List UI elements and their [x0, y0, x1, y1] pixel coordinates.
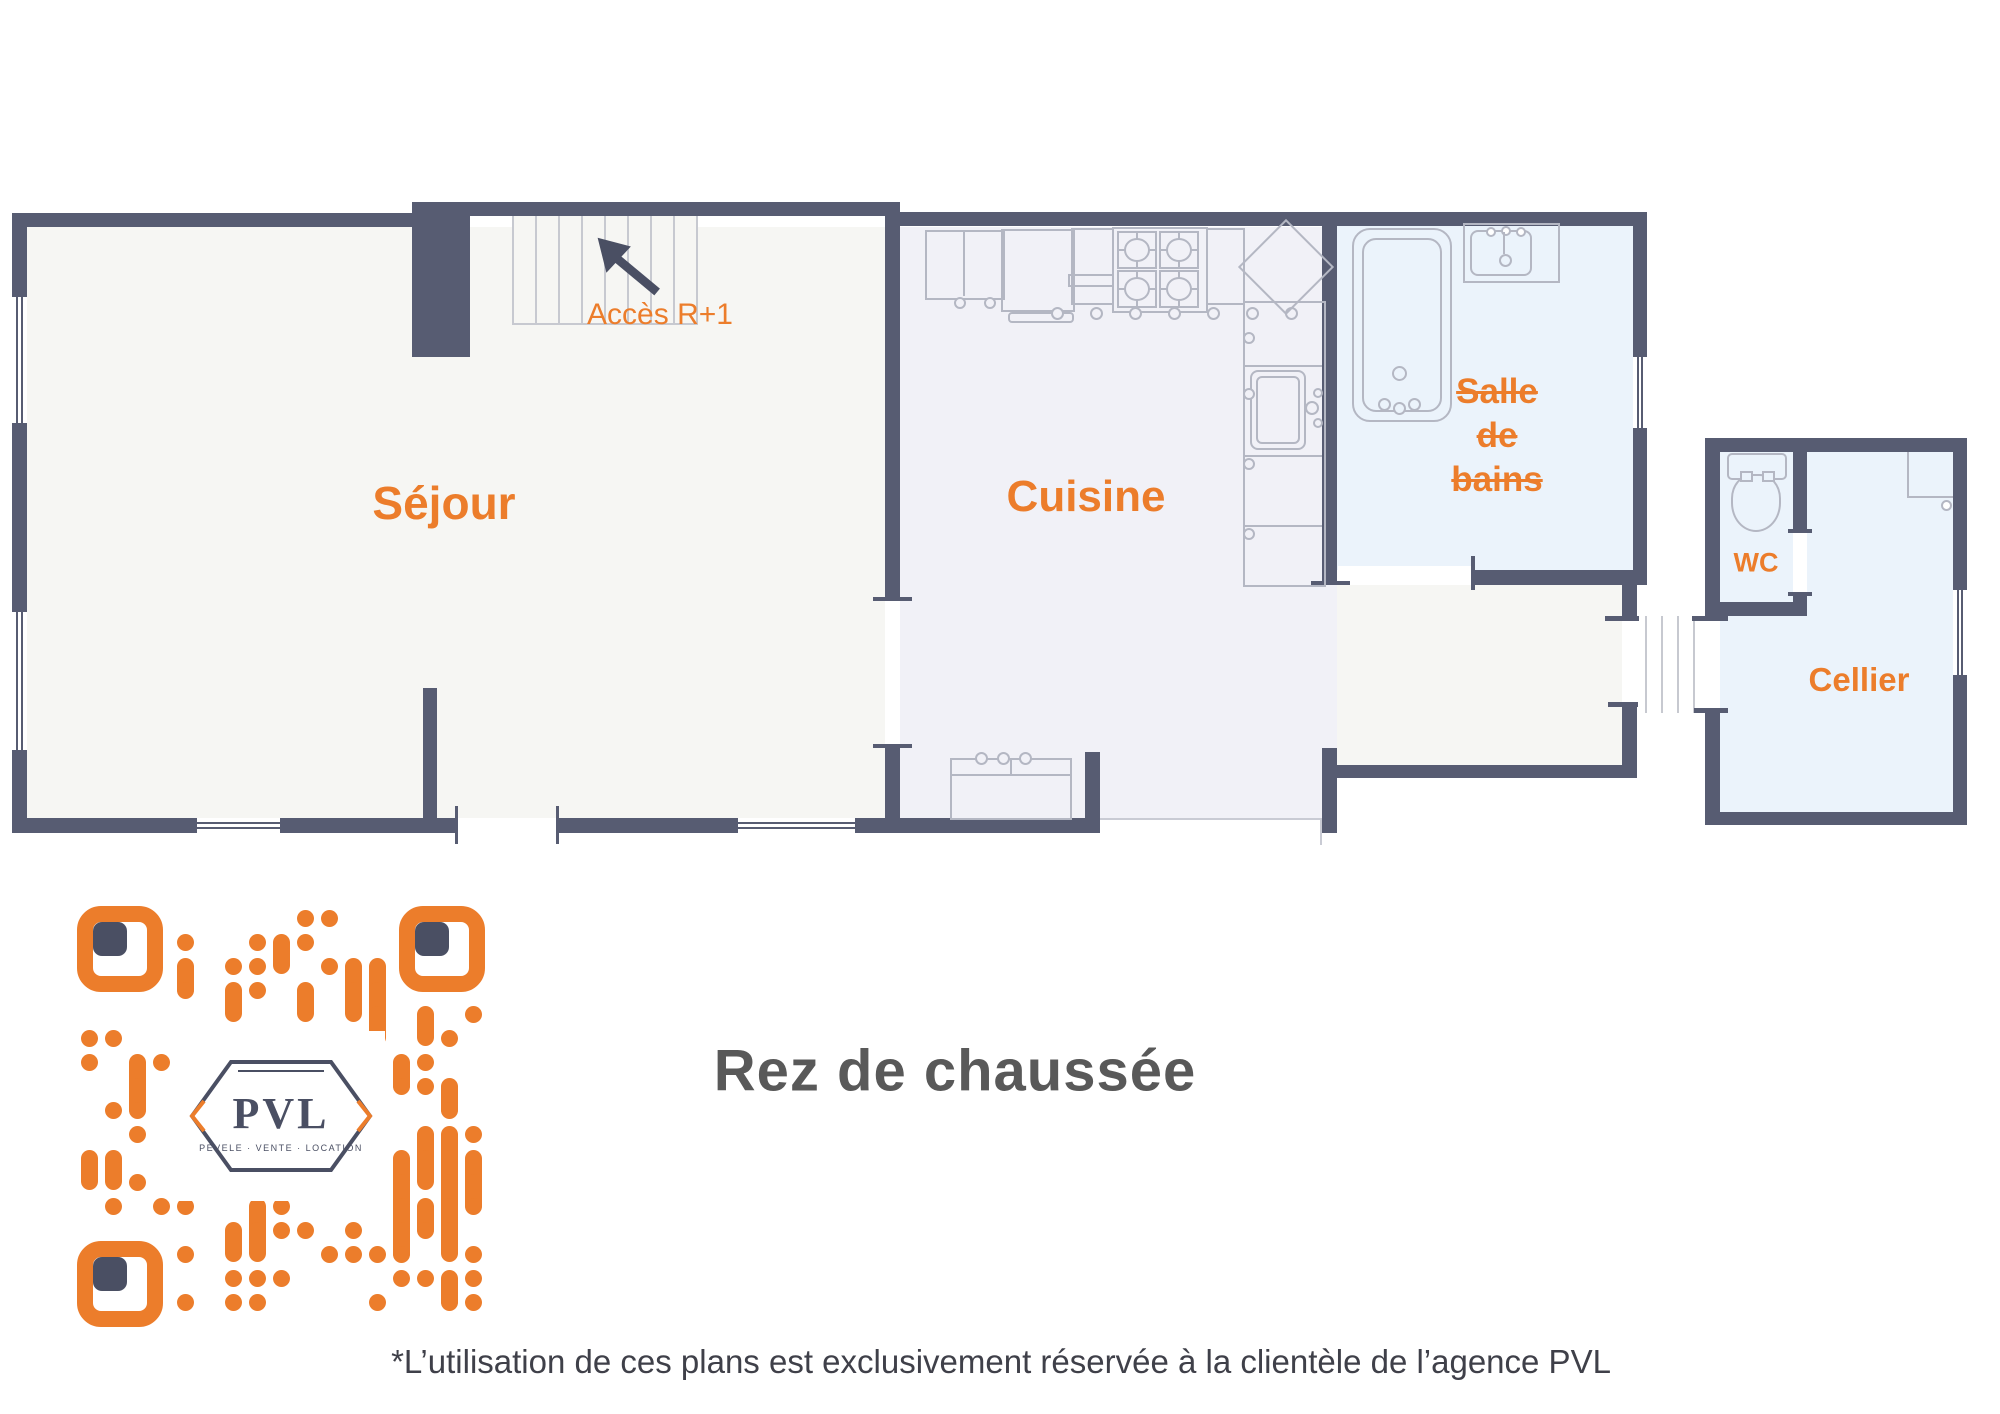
qr-dot	[153, 1054, 170, 1071]
qr-dot	[297, 982, 314, 1022]
sink-faucet-base	[1499, 254, 1512, 267]
qr-dot	[345, 1222, 362, 1239]
wall	[1705, 812, 1967, 825]
wall	[12, 818, 197, 833]
stove-knob	[1051, 307, 1064, 320]
qr-dot	[177, 982, 194, 999]
bathtub-inner	[1362, 238, 1442, 412]
toilet-hinge	[1740, 471, 1753, 482]
qr-dot	[441, 1102, 458, 1119]
wall	[12, 423, 27, 612]
counter-knob	[1243, 388, 1255, 400]
page-title: Rez de chaussée	[714, 1038, 1196, 1105]
qr-dot	[129, 1102, 146, 1119]
wall	[1622, 707, 1637, 772]
cellier-shelf	[1907, 496, 1953, 498]
wall	[1793, 452, 1807, 533]
door-frame-tick	[1788, 529, 1812, 533]
counter-divider	[1243, 525, 1322, 527]
wall	[12, 213, 412, 227]
qr-dot	[105, 1102, 122, 1119]
wall	[412, 202, 900, 216]
hallway-floor	[1337, 585, 1622, 765]
wall	[1718, 602, 1807, 616]
qr-dot	[321, 1246, 338, 1263]
qr-dot	[225, 1270, 242, 1287]
qr-dot	[225, 1222, 242, 1262]
room-label-cellier: Cellier	[1809, 661, 1910, 699]
disclaimer-text: *L’utilisation de ces plans est exclusiv…	[391, 1343, 1611, 1381]
counter-knob	[1243, 528, 1255, 540]
stairs-access-label: Accès R+1	[587, 298, 733, 332]
stove-knob	[1168, 307, 1181, 320]
room-label-salle-de-bains: Salle de bains	[1451, 370, 1542, 502]
toilet-icon	[1731, 474, 1781, 532]
qr-dot	[177, 1246, 194, 1263]
label-line: de	[1477, 416, 1518, 455]
stove-knob	[1090, 307, 1103, 320]
qr-dot	[417, 1270, 434, 1287]
pvl-logo-caption: PEVELE · VENTE · LOCATION	[199, 1143, 363, 1153]
kitchen-sink-basin	[1256, 376, 1300, 444]
room-label-sejour: Séjour	[372, 476, 515, 530]
qr-dot	[129, 1174, 146, 1191]
room-label-wc: WC	[1734, 548, 1779, 579]
wall	[1705, 438, 1967, 452]
qr-dot	[105, 1198, 122, 1215]
kitchen-tray	[1008, 312, 1074, 323]
sink-knob	[1313, 388, 1323, 398]
qr-dot	[393, 1246, 410, 1263]
counter-divider	[1243, 365, 1322, 367]
qr-code: PVL PEVELE · VENTE · LOCATION	[77, 906, 485, 1327]
wall	[1705, 712, 1720, 812]
cabinet-handle	[954, 297, 966, 309]
qr-dot	[441, 1030, 458, 1047]
wall	[1953, 438, 1967, 590]
qr-dot	[321, 910, 338, 927]
wall	[1337, 765, 1637, 778]
stove-knob	[1129, 307, 1142, 320]
pvl-logo-badge: PVL PEVELE · VENTE · LOCATION	[186, 1056, 376, 1176]
qr-dot	[417, 1054, 434, 1071]
counter-knob	[1243, 458, 1255, 470]
bathroom-door-opening	[1338, 566, 1472, 585]
step-tick	[1605, 616, 1639, 621]
cabinet-handle	[984, 297, 996, 309]
qr-dot	[249, 982, 266, 999]
door-frame-tick	[873, 597, 912, 601]
counter-divider	[1243, 455, 1322, 457]
qr-dot	[297, 910, 314, 927]
qr-dot	[465, 1006, 482, 1023]
qr-dot	[225, 958, 242, 975]
qr-dot	[153, 1198, 170, 1215]
qr-dot	[369, 1246, 386, 1263]
wall	[1322, 748, 1337, 833]
bathtub-faucet	[1408, 398, 1421, 411]
qr-dot	[417, 1078, 434, 1095]
stair-pillar-wall	[412, 202, 470, 357]
qr-dot	[345, 1246, 362, 1263]
island-knob	[997, 752, 1010, 765]
label-line: Salle	[1456, 372, 1538, 411]
door-frame-tick	[1471, 556, 1475, 590]
cellier-shelf-knob	[1941, 500, 1952, 511]
qr-dot	[441, 1222, 458, 1262]
qr-dot	[249, 1222, 266, 1262]
qr-dot	[225, 1294, 242, 1311]
stove-icon	[1112, 227, 1208, 313]
qr-dot	[273, 934, 290, 974]
step-tick	[1608, 702, 1638, 707]
stairs-direction-arrow	[585, 236, 675, 306]
wall-stub	[1085, 752, 1100, 818]
wall	[12, 213, 27, 297]
wall	[1633, 223, 1647, 357]
label-line: bains	[1451, 460, 1542, 499]
kitchen-island	[950, 758, 1072, 820]
qr-dot	[417, 1222, 434, 1239]
kitchen-cabinet-divider	[963, 230, 965, 296]
sink-faucet-dot	[1516, 227, 1526, 237]
bathtub-drain	[1392, 366, 1407, 381]
qr-dot	[417, 1150, 434, 1190]
qr-dot	[249, 958, 266, 975]
qr-dot	[321, 958, 338, 975]
window	[1633, 357, 1647, 428]
qr-dot	[297, 1222, 314, 1239]
wall	[1622, 585, 1637, 617]
qr-dot	[129, 1126, 146, 1143]
door-frame-tick	[873, 744, 912, 748]
wall	[1475, 570, 1647, 585]
qr-dot	[393, 1078, 410, 1095]
window	[197, 818, 280, 833]
qr-dot	[393, 1270, 410, 1287]
cellier-shelf	[1907, 452, 1909, 498]
island-knob	[1019, 752, 1032, 765]
qr-dot	[105, 1150, 122, 1190]
qr-dot	[177, 1294, 194, 1311]
qr-dot	[81, 1150, 98, 1190]
sink-faucet-stem	[1503, 232, 1505, 254]
wall	[885, 202, 900, 598]
stove-knob	[1207, 307, 1220, 320]
window	[12, 612, 27, 750]
room-label-cuisine: Cuisine	[1007, 472, 1166, 522]
bathtub-faucet	[1393, 402, 1406, 415]
qr-dot	[81, 1030, 98, 1047]
pvl-logo-text: PVL	[233, 1089, 330, 1138]
qr-dot	[273, 1222, 290, 1239]
qr-dot	[249, 1270, 266, 1287]
wall	[885, 748, 900, 833]
sink-knob	[1313, 418, 1323, 428]
kitchen-tall-unit	[1001, 229, 1075, 312]
qr-dot	[345, 982, 362, 1022]
qr-dot	[249, 1294, 266, 1311]
qr-dot	[369, 1294, 386, 1311]
island-knob	[975, 752, 988, 765]
qr-dot	[81, 1054, 98, 1071]
sink-faucet-dot	[1486, 227, 1496, 237]
qr-dot	[297, 934, 314, 951]
qr-dot	[273, 1270, 290, 1287]
room-cellier-floor-lower	[1720, 615, 1953, 812]
qr-dot	[177, 934, 194, 951]
qr-dot	[249, 934, 266, 951]
open-boundary-line	[1320, 818, 1322, 845]
sink-faucet	[1305, 401, 1319, 415]
kitchen-cabinet	[925, 230, 1005, 300]
wall	[558, 818, 738, 833]
bathtub-faucet	[1378, 398, 1391, 411]
window	[738, 818, 855, 833]
open-boundary-line	[1100, 818, 1322, 820]
exterior-steps	[1637, 616, 1705, 713]
floorplan-canvas: Séjour Cuisine Salle de bains WC Cellier…	[0, 0, 2000, 1414]
door-frame-tick	[455, 806, 458, 844]
qr-dot	[225, 982, 242, 1022]
qr-dot	[417, 1006, 434, 1046]
wall	[1705, 438, 1720, 617]
qr-dot	[465, 1270, 482, 1287]
toilet-hinge	[1762, 471, 1775, 482]
qr-dot	[465, 1294, 482, 1311]
interior-wall	[423, 688, 437, 833]
qr-dot	[465, 1198, 482, 1215]
qr-dot	[465, 1126, 482, 1143]
window	[1953, 590, 1967, 675]
kitchen-hall-opening	[1322, 583, 1337, 748]
qr-dot	[105, 1030, 122, 1047]
pvl-logo: PVL PEVELE · VENTE · LOCATION	[177, 1031, 385, 1201]
wall	[1953, 675, 1967, 825]
counter-knob	[1243, 332, 1255, 344]
window	[12, 297, 27, 423]
wall	[1633, 428, 1647, 585]
qr-dot	[441, 1294, 458, 1311]
qr-dot	[465, 1246, 482, 1263]
bathroom-sink-icon	[1470, 230, 1532, 276]
